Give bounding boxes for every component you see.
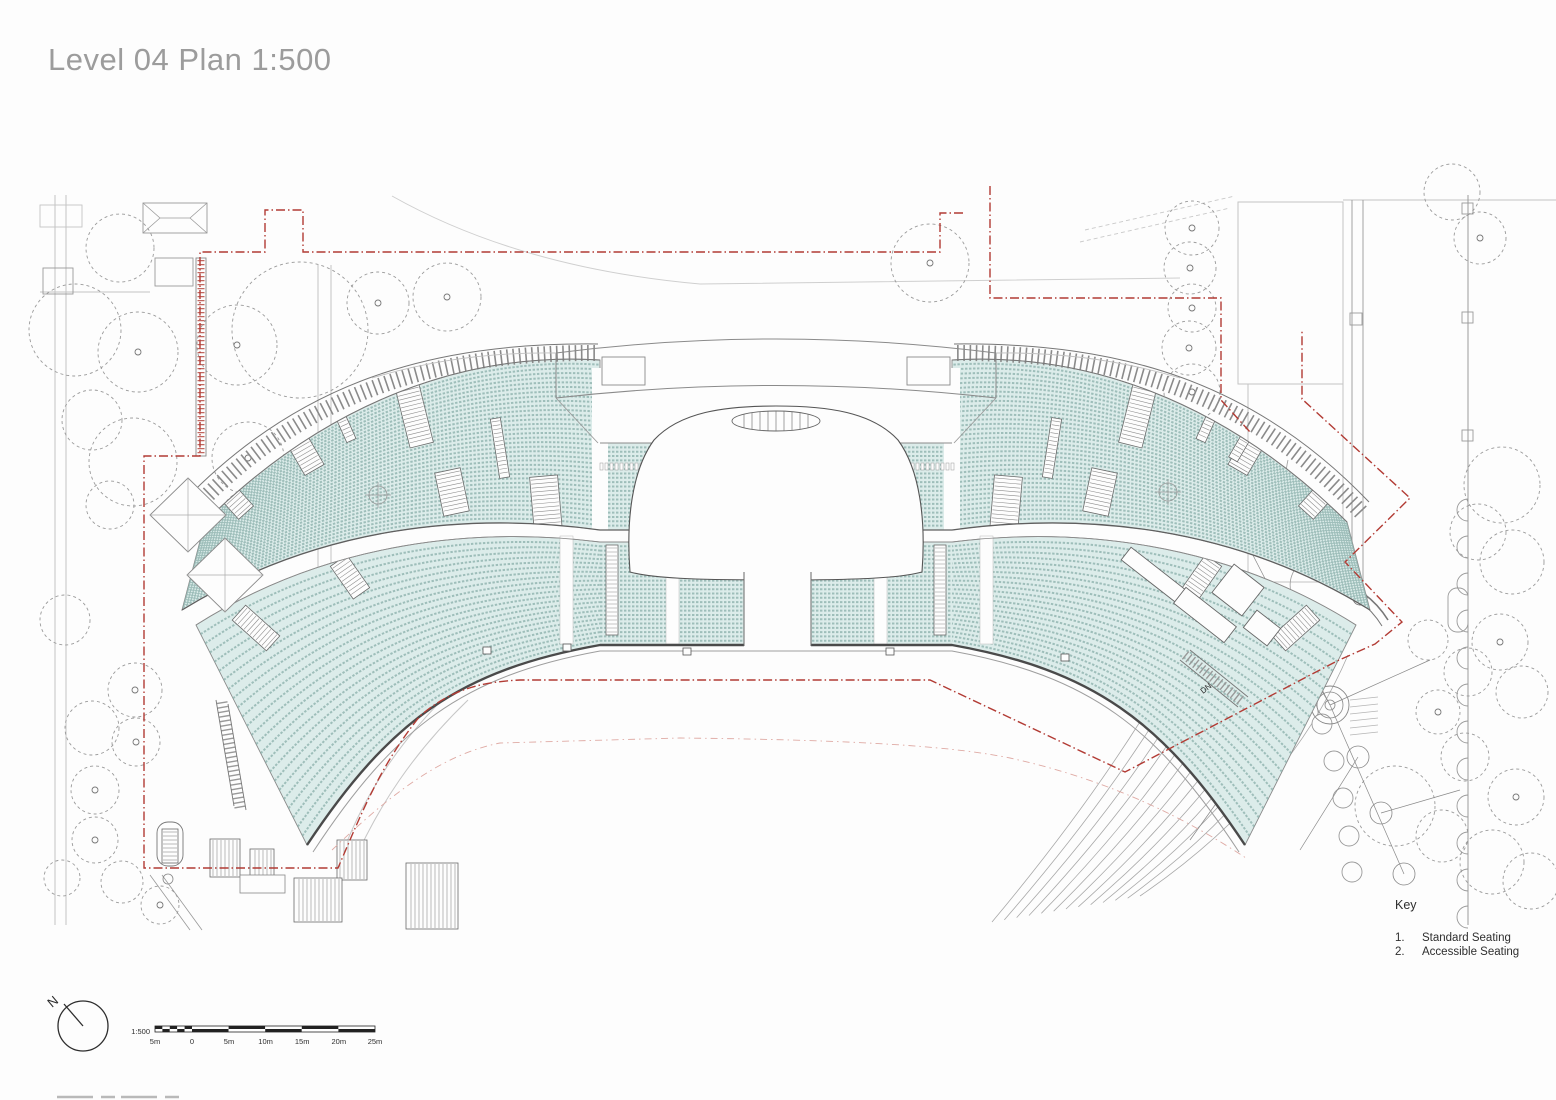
hedge-row (1448, 195, 1473, 928)
tree-canopy (141, 886, 179, 924)
tree-canopy (347, 272, 409, 334)
tree-canopy (62, 390, 122, 450)
north-needle (64, 1004, 83, 1026)
legend-item-accessible-seating: 2. Accessible Seating (1395, 946, 1519, 958)
tree-canopy (1496, 666, 1548, 718)
legend-item-label: Accessible Seating (1422, 946, 1519, 958)
scale-ratio-label: 1:500 (131, 1027, 150, 1036)
stage-canopy (629, 406, 923, 580)
tree-canopy (1454, 212, 1506, 264)
stair (934, 545, 946, 635)
stair (406, 863, 458, 929)
tree-canopy (197, 305, 277, 385)
scale-tick-label: 5m (224, 1037, 234, 1046)
edge-fixture (886, 648, 894, 655)
tree-canopy (40, 595, 90, 645)
legend-item-number: 1. (1395, 932, 1422, 944)
tree-canopy (1488, 769, 1544, 825)
stair (162, 829, 178, 863)
tree-canopy (1165, 201, 1219, 255)
stair (337, 840, 367, 880)
scale-tick-label: 5m (150, 1037, 160, 1046)
aisle (560, 536, 573, 644)
legend-heading: Key (1395, 898, 1519, 912)
tree-canopy (1162, 321, 1216, 375)
tree-canopy (108, 663, 162, 717)
scale-tick-label: 0 (190, 1037, 194, 1046)
tree-canopy (1416, 810, 1468, 862)
scale-tick-label: 15m (295, 1037, 310, 1046)
edge-fixture (1061, 654, 1069, 661)
stair (210, 839, 240, 877)
amphitheatre: DN (150, 339, 1370, 930)
tree-canopy (1441, 733, 1489, 781)
tree-canopy (1355, 766, 1435, 846)
scale-tick-label: 20m (332, 1037, 347, 1046)
drawing-sheet: Level 04 Plan 1:500 DNN1:5005m05m10m15m2… (0, 0, 1556, 1100)
tree-canopy (1472, 614, 1528, 670)
tree-canopy (1416, 690, 1460, 734)
central-vomitory (744, 566, 811, 648)
stair (606, 545, 618, 635)
tree-canopy (72, 817, 118, 863)
tree-canopy (86, 214, 154, 282)
north-label: N (44, 993, 61, 1011)
tree-canopy (86, 481, 134, 529)
tree-canopy (1424, 164, 1480, 220)
tree-canopy (65, 701, 119, 755)
scale-tick-label: 10m (258, 1037, 273, 1046)
aisle (980, 536, 993, 644)
tree-canopy (89, 418, 177, 506)
north-arrow: N (44, 993, 108, 1051)
tree-canopy (1168, 284, 1216, 332)
roof-panel (907, 357, 950, 385)
legend-item-label: Standard Seating (1422, 932, 1511, 944)
roof-panel (602, 357, 645, 385)
tree-canopy (1480, 530, 1544, 594)
tree-canopy (1460, 830, 1524, 894)
tree-canopy (1408, 620, 1448, 660)
tree-canopy (413, 263, 481, 331)
edge-fixture (563, 644, 571, 651)
tree-canopy (112, 718, 160, 766)
stair (294, 878, 342, 922)
tree-canopy (891, 224, 969, 302)
canopy-outline (629, 406, 923, 580)
legend-item-number: 2. (1395, 946, 1422, 958)
tree-canopy (29, 284, 121, 376)
edge-fixture (483, 647, 491, 654)
edge-fixture (683, 648, 691, 655)
tree-canopy (98, 312, 178, 392)
tree-canopy (101, 861, 143, 903)
secondary-boundary-line (332, 738, 1246, 858)
scale-bar: 1:5005m05m10m15m20m25m (131, 1026, 382, 1046)
tree-canopy (44, 860, 80, 896)
tree-canopy (1464, 447, 1540, 523)
tree-canopy (71, 766, 119, 814)
legend: Key 1. Standard Seating 2. Accessible Se… (1395, 898, 1519, 960)
site-plan-drawing: DNN1:5005m05m10m15m20m25m (0, 0, 1556, 1100)
legend-item-standard-seating: 1. Standard Seating (1395, 932, 1519, 944)
scale-tick-label: 25m (368, 1037, 383, 1046)
tree-canopy (232, 262, 368, 398)
